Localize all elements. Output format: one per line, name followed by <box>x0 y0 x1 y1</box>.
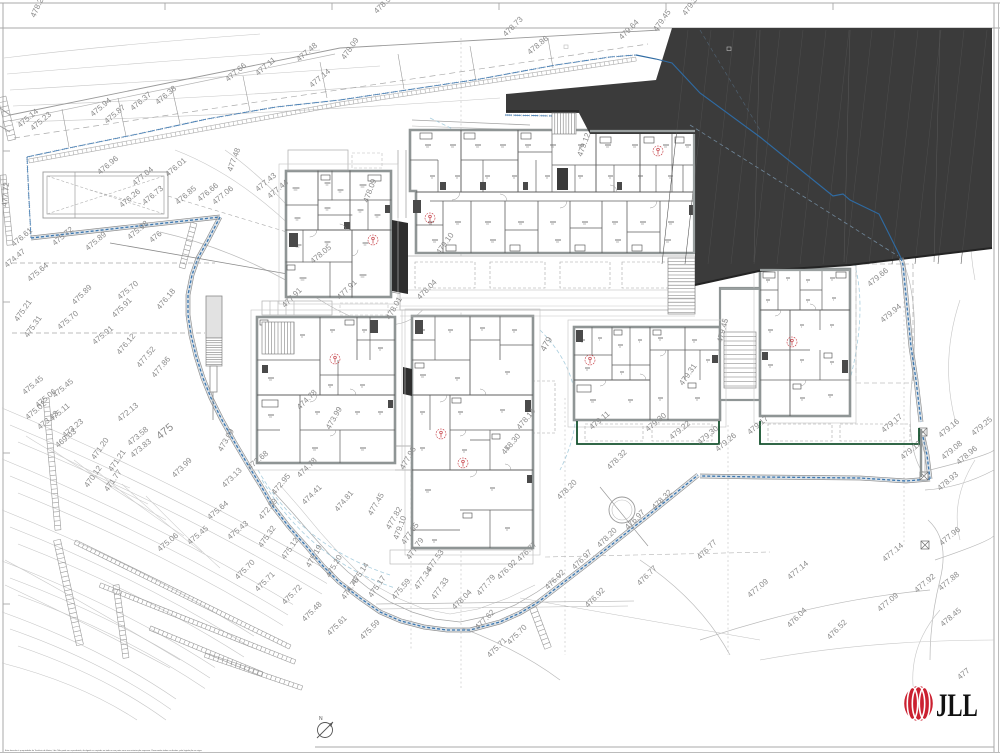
svg-text:477.79: 477.79 <box>475 572 498 597</box>
svg-text:475.89: 475.89 <box>70 282 94 306</box>
svg-text:475.72: 475.72 <box>280 582 304 606</box>
svg-text:475.17: 475.17 <box>366 573 388 599</box>
svg-text:478.09: 478.09 <box>339 35 361 61</box>
svg-text:479.66: 479.66 <box>866 266 891 289</box>
svg-text:471.20: 471.20 <box>89 435 111 461</box>
svg-text:477.92: 477.92 <box>913 572 938 595</box>
svg-text:479.17: 479.17 <box>880 412 905 435</box>
svg-text:476.12: 476.12 <box>115 331 138 356</box>
svg-text:479.12: 479.12 <box>899 439 924 462</box>
svg-text:474.81: 474.81 <box>333 488 356 513</box>
svg-text:474.47: 474.47 <box>3 247 28 270</box>
svg-text:478.57: 478.57 <box>372 0 396 15</box>
svg-text:478.32: 478.32 <box>650 487 674 511</box>
svg-text:472.95: 472.95 <box>270 471 293 496</box>
svg-text:JLL: JLL <box>936 688 978 724</box>
svg-text:475.06: 475.06 <box>156 531 181 554</box>
svg-text:477.14: 477.14 <box>786 559 811 582</box>
svg-text:478.73: 478.73 <box>501 14 525 38</box>
svg-text:479.25: 479.25 <box>970 415 995 438</box>
svg-text:475.59: 475.59 <box>358 617 382 641</box>
svg-text:474.41: 474.41 <box>300 482 324 506</box>
svg-text:478.93: 478.93 <box>936 470 961 493</box>
svg-text:477.96: 477.96 <box>938 525 963 548</box>
svg-text:472.13: 472.13 <box>116 401 141 424</box>
svg-text:475.64: 475.64 <box>206 499 231 522</box>
svg-text:477.45: 477.45 <box>366 491 386 517</box>
svg-text:478.20: 478.20 <box>555 477 579 501</box>
svg-text:475: 475 <box>154 421 176 442</box>
svg-text:475.21: 475.21 <box>12 297 34 323</box>
svg-text:476: 476 <box>148 229 164 245</box>
svg-text:479.26: 479.26 <box>714 431 739 454</box>
svg-text:475.70: 475.70 <box>505 622 529 646</box>
svg-text:477.09: 477.09 <box>876 591 901 614</box>
svg-text:476.04: 476.04 <box>785 605 809 629</box>
svg-text:479.64: 479.64 <box>617 17 641 41</box>
svg-text:475.71: 475.71 <box>253 569 277 593</box>
svg-text:475.31: 475.31 <box>22 313 44 339</box>
svg-text:476.01: 476.01 <box>164 156 189 179</box>
svg-text:476.92: 476.92 <box>583 585 607 609</box>
svg-text:476.52: 476.52 <box>825 617 849 641</box>
svg-text:477.09: 477.09 <box>746 577 771 600</box>
svg-text:479.22: 479.22 <box>668 419 693 442</box>
svg-text:477.88: 477.88 <box>937 570 962 593</box>
svg-text:479.16: 479.16 <box>937 417 962 440</box>
svg-text:478.32: 478.32 <box>605 447 629 471</box>
svg-text:475.45: 475.45 <box>186 524 211 547</box>
svg-text:N: N <box>319 716 323 722</box>
svg-text:475.70: 475.70 <box>56 309 81 332</box>
svg-text:477.52: 477.52 <box>135 344 158 369</box>
svg-text:475.45: 475.45 <box>51 377 76 400</box>
svg-text:479.17: 479.17 <box>746 414 771 437</box>
svg-text:473.13: 473.13 <box>220 465 244 489</box>
svg-text:479.45: 479.45 <box>651 7 673 33</box>
svg-text:475.61: 475.61 <box>325 613 349 637</box>
svg-text:475.70: 475.70 <box>233 557 257 581</box>
svg-text:477.14: 477.14 <box>881 541 906 564</box>
svg-text:Este desenho é propriedade de: Este desenho é propriedade de Território… <box>5 749 202 752</box>
svg-text:470.12: 470.12 <box>82 463 104 489</box>
svg-text:479.94: 479.94 <box>879 302 904 325</box>
svg-text:476.77: 476.77 <box>635 563 659 587</box>
svg-text:477.72: 477.72 <box>0 181 11 207</box>
svg-text:475.45: 475.45 <box>21 374 46 397</box>
svg-text:475.64: 475.64 <box>26 261 51 284</box>
svg-text:476.92: 476.92 <box>495 557 519 581</box>
svg-text:473.99: 473.99 <box>170 455 194 479</box>
svg-text:477.33: 477.33 <box>429 575 451 601</box>
svg-text:475.12: 475.12 <box>279 535 301 561</box>
svg-text:476.18: 476.18 <box>155 286 178 311</box>
svg-text:478.45: 478.45 <box>939 606 964 629</box>
svg-text:476.38: 476.38 <box>154 84 179 107</box>
svg-text:477.66: 477.66 <box>224 61 249 84</box>
svg-text:477.34: 477.34 <box>412 565 434 591</box>
svg-text:476.73: 476.73 <box>141 184 166 207</box>
svg-text:477: 477 <box>956 666 972 682</box>
svg-text:475.91: 475.91 <box>91 324 116 347</box>
svg-text:477.48: 477.48 <box>225 146 242 173</box>
svg-text:476.77: 476.77 <box>695 537 719 561</box>
svg-text:475.48: 475.48 <box>300 599 324 623</box>
svg-text:476.37: 476.37 <box>129 90 154 113</box>
svg-text:477.86: 477.86 <box>150 354 173 379</box>
svg-text:476.85: 476.85 <box>174 184 199 207</box>
svg-text:475.59: 475.59 <box>390 576 413 601</box>
svg-text:475.32: 475.32 <box>256 523 278 549</box>
svg-text:479: 479 <box>538 335 554 353</box>
svg-text:476.96: 476.96 <box>96 154 121 177</box>
